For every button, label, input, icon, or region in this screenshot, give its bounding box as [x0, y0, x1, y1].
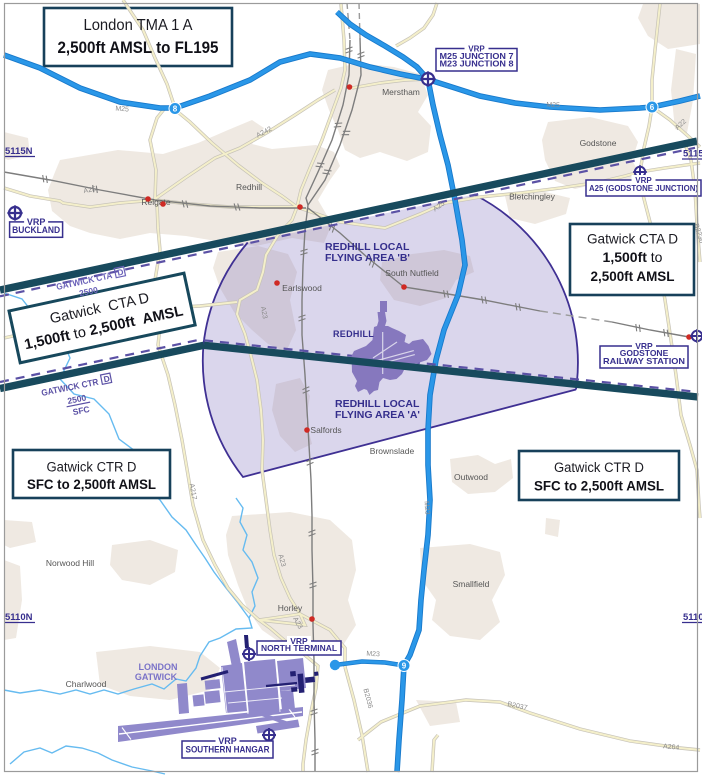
svg-text:FLYING AREA 'B': FLYING AREA 'B' — [325, 252, 410, 264]
svg-text:M25: M25 — [115, 106, 129, 114]
svg-text:5110N: 5110N — [5, 612, 33, 623]
svg-text:NORTH TERMINAL: NORTH TERMINAL — [261, 643, 337, 653]
svg-text:2,500ft AMSL: 2,500ft AMSL — [591, 268, 675, 284]
svg-text:SOUTHERN HANGAR: SOUTHERN HANGAR — [186, 745, 270, 755]
svg-text:8: 8 — [173, 104, 178, 113]
svg-text:Redhill: Redhill — [236, 182, 262, 192]
svg-text:Smallfield: Smallfield — [453, 579, 490, 589]
svg-text:5115N: 5115N — [5, 146, 33, 157]
svg-text:6: 6 — [650, 103, 655, 112]
svg-text:SFC to 2,500ft AMSL: SFC to 2,500ft AMSL — [27, 476, 156, 492]
svg-text:FLYING AREA 'A': FLYING AREA 'A' — [335, 409, 420, 421]
svg-text:Norwood Hill: Norwood Hill — [46, 558, 94, 568]
svg-text:5115N: 5115N — [683, 149, 702, 160]
svg-text:Godstone: Godstone — [580, 138, 617, 148]
svg-text:South Nutfield: South Nutfield — [385, 268, 439, 278]
svg-text:M25: M25 — [546, 102, 560, 109]
svg-text:M23: M23 — [422, 501, 430, 515]
svg-text:London TMA 1 A: London TMA 1 A — [84, 17, 193, 34]
svg-text:Charlwood: Charlwood — [66, 679, 107, 689]
svg-text:5110N: 5110N — [683, 612, 702, 623]
svg-text:REDHILL: REDHILL — [333, 329, 374, 339]
svg-text:M23 JUNCTION 8: M23 JUNCTION 8 — [440, 59, 515, 68]
svg-text:2,500ft AMSL to FL195: 2,500ft AMSL to FL195 — [58, 38, 219, 57]
svg-text:Brownslade: Brownslade — [370, 446, 415, 456]
svg-text:1,500ft to: 1,500ft to — [603, 249, 663, 265]
svg-text:LONDON: LONDON — [139, 662, 178, 672]
svg-text:9: 9 — [402, 661, 407, 670]
svg-text:RAILWAY STATION: RAILWAY STATION — [603, 356, 685, 366]
svg-text:Horley: Horley — [278, 603, 303, 613]
svg-text:M23: M23 — [366, 651, 380, 659]
svg-text:Gatwick CTR D: Gatwick CTR D — [554, 460, 644, 475]
svg-text:Outwood: Outwood — [454, 472, 488, 482]
svg-text:A264: A264 — [663, 743, 680, 751]
svg-text:Salfords: Salfords — [310, 425, 341, 435]
svg-text:GATWICK: GATWICK — [135, 672, 178, 682]
svg-text:Earlswood: Earlswood — [282, 283, 322, 293]
svg-text:Gatwick CTA D: Gatwick CTA D — [587, 231, 678, 247]
svg-text:SFC to 2,500ft AMSL: SFC to 2,500ft AMSL — [534, 478, 664, 494]
svg-text:Gatwick CTR D: Gatwick CTR D — [47, 460, 137, 475]
svg-text:BUCKLAND: BUCKLAND — [12, 225, 60, 235]
svg-text:Bletchingley: Bletchingley — [509, 192, 556, 202]
svg-text:A25 (GODSTONE JUNCTION): A25 (GODSTONE JUNCTION) — [589, 184, 698, 193]
svg-text:Merstham: Merstham — [382, 87, 420, 97]
